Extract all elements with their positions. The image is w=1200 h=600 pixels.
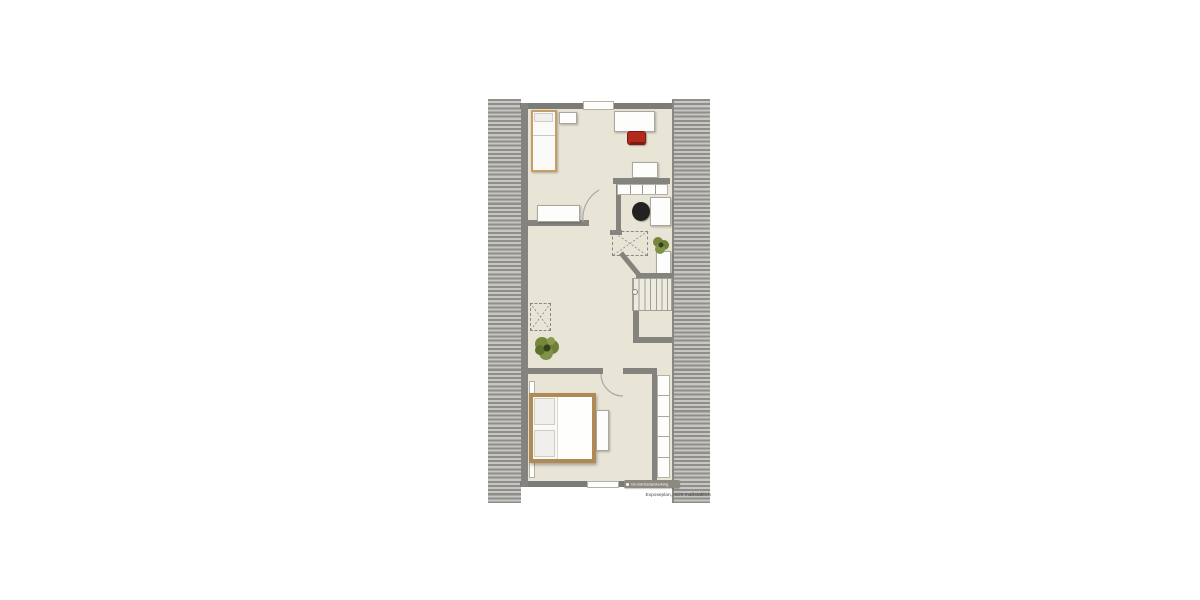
- wall-diagonal: [621, 253, 639, 275]
- door-arc-bedroom: [601, 374, 623, 396]
- plan-caption: Exposeplan, nicht maßstäblich: [646, 492, 711, 497]
- floor-plan: Grundrissdarstellung Exposeplan, nicht m…: [488, 98, 710, 503]
- watermark-text: Grundrissdarstellung: [631, 482, 668, 487]
- plant-hallway: [535, 337, 559, 360]
- watermark-badge: Grundrissdarstellung: [624, 480, 680, 488]
- plan-linework: [488, 98, 710, 503]
- plant-office: [653, 237, 669, 254]
- door-arc-top-room: [583, 190, 599, 222]
- floor-plan-image: Grundrissdarstellung Exposeplan, nicht m…: [0, 0, 1200, 600]
- watermark-logo-icon: [626, 483, 629, 486]
